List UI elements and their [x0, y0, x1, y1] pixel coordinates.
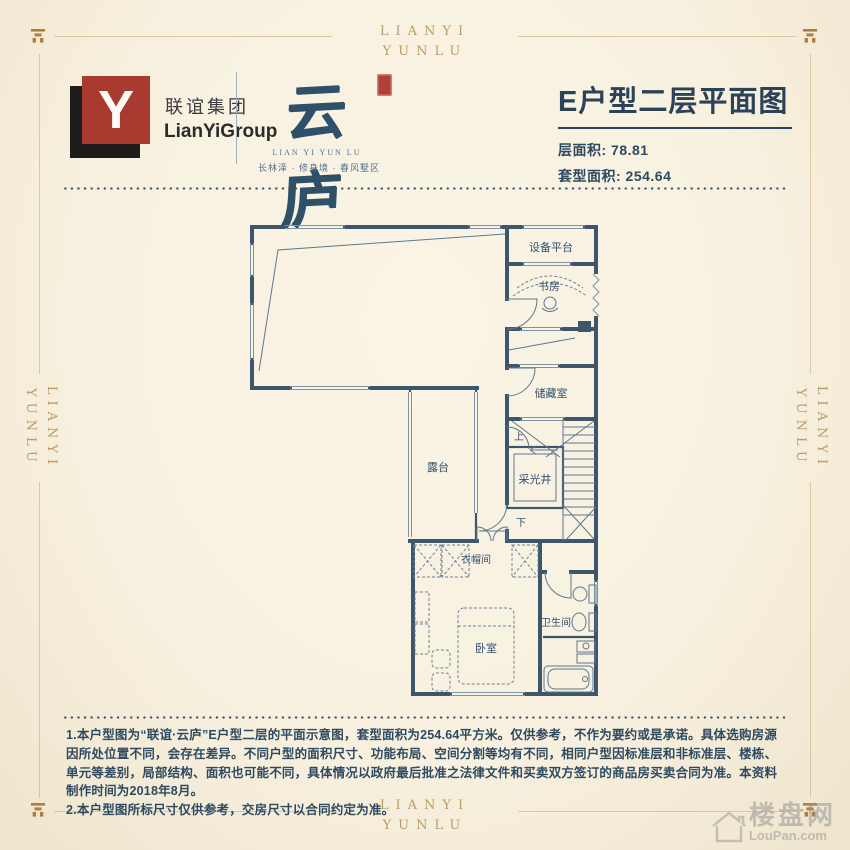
logo-monogram: Y	[98, 83, 134, 137]
room-label-light-well: 采光井	[519, 472, 552, 486]
company-logo: Y	[68, 74, 154, 160]
floor-plan: 设备平台 书房 储藏室 采光井 露台 衣帽间 卧室 卫生间 上 下	[238, 213, 626, 719]
house-icon	[709, 808, 749, 844]
unit-area-value: 套型面积: 254.64	[558, 166, 792, 186]
logo-red-square: Y	[82, 76, 150, 144]
title-block: E户型二层平面图 层面积: 78.81 套型面积: 254.64	[558, 78, 792, 186]
page: LIANYI YUNLU LIANYI YUNLU LIANYI YUNLU L…	[0, 0, 850, 850]
stair-down-label: 下	[516, 518, 526, 529]
bathroom-fixtures	[544, 585, 596, 692]
watermark-cn: 楼盘网	[749, 802, 836, 828]
header-divider	[236, 72, 237, 164]
frame-line-right-upper	[810, 54, 811, 374]
disclaimer-note-2: 2.本户型图所标尺寸仅供参考，交房尺寸以合同约定为准。	[66, 801, 788, 820]
bedroom-furniture	[415, 592, 514, 691]
room-label-bedroom: 卧室	[475, 641, 497, 655]
frame-line-left-lower	[39, 482, 40, 798]
frame-word-left: LIANYI YUNLU	[18, 383, 62, 473]
brand-block: 云庐 LIAN YI YUN LU 长林泽 · 修身境 · 春风墅区	[252, 60, 394, 180]
disclaimer: 1.本户型图为“联谊·云庐”E户型二层的平面示意图，套型面积为254.64平方米…	[66, 726, 788, 820]
stair-up-label: 上	[514, 431, 524, 443]
room-label-study: 书房	[538, 280, 560, 293]
watermark-en: LouPan.com	[749, 828, 836, 844]
frame-word-top: LIANYI YUNLU	[0, 22, 850, 62]
brand-seal-stamp-icon	[377, 74, 392, 96]
room-label-bathroom: 卫生间	[541, 616, 571, 629]
disclaimer-note-1: 1.本户型图为“联谊·云庐”E户型二层的平面示意图，套型面积为254.64平方米…	[66, 726, 788, 801]
dotted-separator-top	[62, 187, 788, 190]
room-label-terrace: 露台	[427, 460, 449, 474]
void-slope-lines	[259, 234, 505, 371]
room-label-equipment-platform: 设备平台	[529, 240, 573, 254]
watermark: 楼盘网 LouPan.com	[709, 802, 836, 844]
brand-tagline: 长林泽 · 修身境 · 春风墅区	[244, 161, 394, 174]
frame-word-right: LIANYI YUNLU	[788, 383, 832, 473]
brand-name-pinyin: LIAN YI YUN LU	[252, 148, 382, 157]
floor-area-value: 层面积: 78.81	[558, 140, 792, 160]
page-title: E户型二层平面图	[558, 78, 792, 129]
room-label-cloakroom: 衣帽间	[461, 553, 491, 566]
frame-line-right-lower	[810, 482, 811, 798]
room-label-storage: 储藏室	[535, 386, 568, 400]
frame-line-left-upper	[39, 54, 40, 374]
duct-box	[578, 321, 591, 332]
